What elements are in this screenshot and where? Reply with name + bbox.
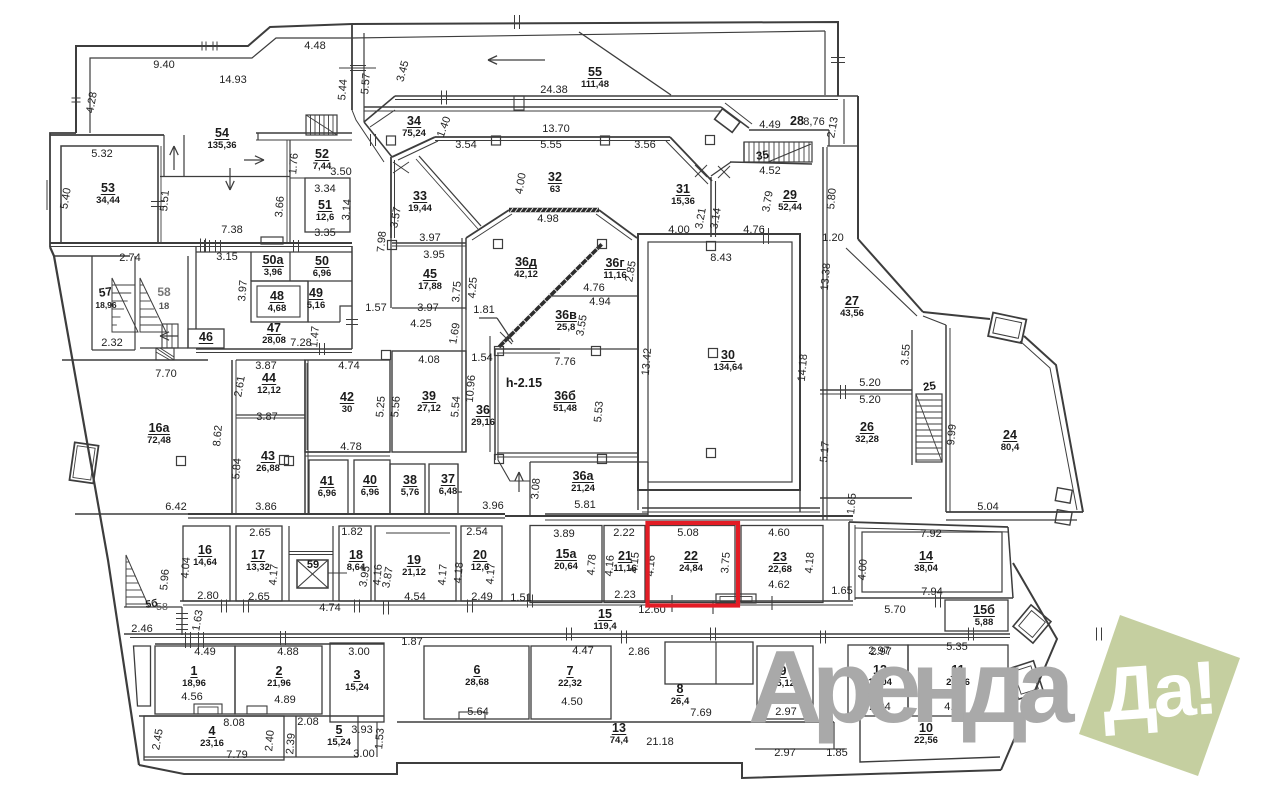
svg-text:51: 51 bbox=[318, 198, 332, 212]
svg-text:7.79: 7.79 bbox=[226, 749, 247, 761]
svg-text:41: 41 bbox=[320, 474, 334, 488]
svg-text:20,64: 20,64 bbox=[554, 561, 578, 572]
svg-text:4.76: 4.76 bbox=[743, 224, 764, 236]
svg-text:5.53: 5.53 bbox=[592, 401, 606, 423]
svg-text:28: 28 bbox=[790, 114, 804, 128]
svg-text:12,6: 12,6 bbox=[316, 212, 335, 223]
svg-text:3.50: 3.50 bbox=[330, 166, 351, 178]
svg-text:7.98: 7.98 bbox=[375, 231, 389, 253]
svg-text:13.42: 13.42 bbox=[640, 348, 654, 376]
svg-text:6,48: 6,48 bbox=[439, 486, 458, 497]
svg-text:29,16: 29,16 bbox=[471, 417, 495, 428]
svg-text:1.47: 1.47 bbox=[308, 326, 322, 348]
svg-text:36г: 36г bbox=[605, 256, 624, 270]
svg-text:4.62: 4.62 bbox=[768, 579, 789, 591]
svg-text:3.14: 3.14 bbox=[340, 199, 354, 221]
svg-text:4.89: 4.89 bbox=[274, 694, 295, 706]
svg-text:4.78: 4.78 bbox=[585, 554, 599, 576]
svg-text:36а: 36а bbox=[573, 469, 595, 483]
svg-text:30: 30 bbox=[342, 404, 353, 415]
svg-text:4.60: 4.60 bbox=[768, 527, 789, 539]
svg-text:135,36: 135,36 bbox=[207, 140, 236, 151]
svg-text:3.87: 3.87 bbox=[256, 411, 277, 423]
svg-text:2.65: 2.65 bbox=[248, 591, 269, 603]
svg-text:8.08: 8.08 bbox=[223, 717, 244, 729]
svg-text:3: 3 bbox=[354, 668, 361, 682]
svg-text:52,44: 52,44 bbox=[778, 202, 802, 213]
svg-text:4.94: 4.94 bbox=[589, 296, 610, 308]
svg-text:36д: 36д bbox=[515, 255, 537, 269]
svg-text:4.50: 4.50 bbox=[561, 696, 582, 708]
svg-text:43,56: 43,56 bbox=[840, 308, 864, 319]
svg-text:32,28: 32,28 bbox=[855, 434, 879, 445]
svg-text:34: 34 bbox=[407, 114, 421, 128]
svg-text:28,68: 28,68 bbox=[465, 677, 489, 688]
svg-text:5.17: 5.17 bbox=[818, 441, 832, 463]
svg-text:42: 42 bbox=[340, 390, 354, 404]
svg-text:8.43: 8.43 bbox=[710, 252, 731, 264]
svg-text:2.80: 2.80 bbox=[197, 590, 218, 602]
svg-text:17,88: 17,88 bbox=[418, 281, 442, 292]
svg-text:22: 22 bbox=[684, 549, 698, 563]
svg-text:31: 31 bbox=[676, 182, 690, 196]
svg-text:29: 29 bbox=[783, 188, 797, 202]
svg-text:4.98: 4.98 bbox=[537, 213, 558, 225]
svg-text:1.51: 1.51 bbox=[510, 592, 531, 604]
svg-text:27,12: 27,12 bbox=[417, 403, 441, 414]
svg-text:50а: 50а bbox=[263, 253, 285, 267]
svg-text:5.96: 5.96 bbox=[158, 569, 172, 591]
svg-text:6,96: 6,96 bbox=[313, 268, 332, 279]
svg-text:54: 54 bbox=[215, 126, 229, 140]
svg-text:1.87: 1.87 bbox=[401, 636, 422, 648]
svg-text:30: 30 bbox=[721, 348, 735, 362]
svg-text:4.08: 4.08 bbox=[418, 354, 439, 366]
svg-text:3.86: 3.86 bbox=[255, 501, 276, 513]
svg-text:4.56: 4.56 bbox=[181, 691, 202, 703]
svg-text:12,12: 12,12 bbox=[257, 385, 281, 396]
svg-text:4.49: 4.49 bbox=[759, 119, 780, 131]
svg-text:5.84: 5.84 bbox=[230, 458, 244, 480]
svg-text:57: 57 bbox=[98, 284, 113, 300]
svg-text:74,4: 74,4 bbox=[610, 735, 629, 746]
svg-text:15,24: 15,24 bbox=[327, 737, 351, 748]
svg-text:14.18: 14.18 bbox=[796, 354, 810, 382]
svg-text:2.86: 2.86 bbox=[628, 646, 649, 658]
svg-text:3,96: 3,96 bbox=[264, 267, 283, 278]
svg-text:80,4: 80,4 bbox=[1001, 442, 1020, 453]
svg-text:4.18: 4.18 bbox=[452, 562, 466, 584]
svg-text:3.97: 3.97 bbox=[417, 302, 438, 314]
svg-text:5.04: 5.04 bbox=[977, 501, 998, 513]
svg-text:36б: 36б bbox=[554, 389, 576, 403]
svg-text:3.34: 3.34 bbox=[314, 183, 335, 195]
svg-text:22,68: 22,68 bbox=[768, 564, 792, 575]
svg-text:52: 52 bbox=[315, 147, 329, 161]
svg-text:4.74: 4.74 bbox=[338, 360, 359, 372]
svg-text:38,04: 38,04 bbox=[914, 563, 938, 574]
svg-text:1.81: 1.81 bbox=[473, 304, 494, 316]
svg-text:2.32: 2.32 bbox=[101, 337, 122, 349]
svg-text:4.00: 4.00 bbox=[856, 559, 870, 581]
svg-text:3.89: 3.89 bbox=[553, 528, 574, 540]
svg-text:55: 55 bbox=[588, 65, 602, 79]
svg-text:12,6: 12,6 bbox=[471, 562, 490, 573]
svg-text:3.75: 3.75 bbox=[450, 281, 464, 303]
svg-text:19: 19 bbox=[407, 553, 421, 567]
svg-text:3.97: 3.97 bbox=[419, 232, 440, 244]
svg-text:1.65: 1.65 bbox=[845, 493, 859, 515]
svg-text:13: 13 bbox=[612, 721, 626, 735]
svg-text:53: 53 bbox=[101, 181, 115, 195]
svg-text:Аренда: Аренда bbox=[748, 629, 1075, 744]
svg-text:4.04: 4.04 bbox=[179, 557, 193, 579]
svg-text:4.52: 4.52 bbox=[759, 165, 780, 177]
svg-text:21.18: 21.18 bbox=[646, 736, 674, 748]
svg-text:6,96: 6,96 bbox=[318, 488, 337, 499]
svg-text:24.38: 24.38 bbox=[540, 84, 568, 96]
svg-text:7: 7 bbox=[567, 664, 574, 678]
svg-text:24,84: 24,84 bbox=[679, 563, 703, 574]
svg-text:2.54: 2.54 bbox=[466, 526, 487, 538]
svg-text:1.65: 1.65 bbox=[831, 585, 852, 597]
svg-text:5.20: 5.20 bbox=[859, 377, 880, 389]
svg-text:3.08: 3.08 bbox=[529, 478, 543, 500]
svg-text:36в: 36в bbox=[555, 308, 577, 322]
svg-text:18,96: 18,96 bbox=[182, 678, 206, 689]
svg-text:38: 38 bbox=[403, 473, 417, 487]
svg-text:2.49: 2.49 bbox=[471, 591, 492, 603]
svg-text:11,16: 11,16 bbox=[603, 270, 626, 281]
svg-text:27: 27 bbox=[845, 294, 859, 308]
svg-text:1: 1 bbox=[191, 664, 198, 678]
svg-text:4.78: 4.78 bbox=[340, 441, 361, 453]
svg-text:5.54: 5.54 bbox=[449, 396, 463, 418]
svg-text:7.70: 7.70 bbox=[155, 368, 176, 380]
svg-text:22,32: 22,32 bbox=[558, 678, 582, 689]
svg-text:5,88: 5,88 bbox=[975, 617, 994, 628]
svg-text:9.40: 9.40 bbox=[153, 59, 174, 71]
svg-text:3.66: 3.66 bbox=[273, 196, 287, 218]
svg-text:18: 18 bbox=[159, 301, 170, 312]
svg-text:21,12: 21,12 bbox=[402, 567, 426, 578]
svg-text:4,68: 4,68 bbox=[268, 303, 287, 314]
svg-text:26,4: 26,4 bbox=[671, 696, 690, 707]
svg-text:2.97: 2.97 bbox=[774, 747, 795, 759]
svg-text:15,24: 15,24 bbox=[345, 682, 369, 693]
svg-text:1.54: 1.54 bbox=[471, 352, 492, 364]
svg-text:5.08: 5.08 bbox=[677, 527, 698, 539]
svg-text:48: 48 bbox=[270, 289, 284, 303]
svg-text:17: 17 bbox=[251, 548, 265, 562]
svg-text:4.47: 4.47 bbox=[572, 645, 593, 657]
svg-text:9.99: 9.99 bbox=[945, 424, 959, 446]
svg-text:6.42: 6.42 bbox=[165, 501, 186, 513]
svg-text:4.54: 4.54 bbox=[404, 591, 425, 603]
svg-text:4.17: 4.17 bbox=[436, 564, 450, 586]
svg-text:20: 20 bbox=[473, 548, 487, 562]
svg-text:13,32: 13,32 bbox=[246, 562, 270, 573]
svg-text:h-2.15: h-2.15 bbox=[506, 376, 542, 390]
svg-text:4.88: 4.88 bbox=[277, 646, 298, 658]
svg-text:3.56: 3.56 bbox=[634, 139, 655, 151]
svg-text:4.18: 4.18 bbox=[803, 552, 817, 574]
svg-text:15а: 15а bbox=[556, 547, 578, 561]
svg-text:23,16: 23,16 bbox=[200, 738, 224, 749]
svg-text:3.93: 3.93 bbox=[351, 724, 372, 736]
svg-text:8.62: 8.62 bbox=[211, 425, 225, 447]
svg-text:2.74: 2.74 bbox=[119, 252, 140, 264]
svg-text:15: 15 bbox=[598, 607, 612, 621]
svg-text:4.48: 4.48 bbox=[304, 40, 325, 52]
svg-text:3.00: 3.00 bbox=[348, 646, 369, 658]
svg-text:45: 45 bbox=[423, 267, 437, 281]
svg-text:2.23: 2.23 bbox=[614, 589, 635, 601]
svg-text:24: 24 bbox=[1003, 428, 1017, 442]
svg-text:7,44: 7,44 bbox=[313, 161, 332, 172]
svg-text:5.80: 5.80 bbox=[825, 188, 839, 210]
svg-text:59: 59 bbox=[307, 559, 319, 571]
svg-text:5.44: 5.44 bbox=[336, 79, 350, 101]
svg-text:58: 58 bbox=[157, 285, 171, 299]
svg-text:3.55: 3.55 bbox=[899, 344, 913, 366]
svg-text:14: 14 bbox=[919, 549, 933, 563]
svg-text:134,64: 134,64 bbox=[713, 362, 743, 373]
svg-text:6,96: 6,96 bbox=[361, 487, 380, 498]
svg-text:7.69: 7.69 bbox=[690, 707, 711, 719]
svg-text:1.20: 1.20 bbox=[822, 232, 843, 244]
svg-text:40: 40 bbox=[363, 473, 377, 487]
svg-text:119,4: 119,4 bbox=[593, 621, 617, 632]
svg-text:36: 36 bbox=[476, 403, 490, 417]
svg-text:5,76: 5,76 bbox=[401, 487, 420, 498]
svg-text:47: 47 bbox=[267, 321, 281, 335]
svg-text:4.25: 4.25 bbox=[466, 277, 480, 299]
svg-text:18: 18 bbox=[349, 548, 363, 562]
svg-text:1.85: 1.85 bbox=[826, 747, 847, 759]
svg-text:4.49: 4.49 bbox=[194, 646, 215, 658]
svg-text:5.20: 5.20 bbox=[859, 394, 880, 406]
svg-text:5: 5 bbox=[336, 723, 343, 737]
svg-text:2.65: 2.65 bbox=[249, 527, 270, 539]
svg-text:5.57: 5.57 bbox=[359, 73, 373, 95]
svg-text:2.39: 2.39 bbox=[284, 733, 298, 755]
svg-text:11,16: 11,16 bbox=[613, 563, 636, 574]
svg-text:2.22: 2.22 bbox=[613, 527, 634, 539]
svg-text:3.75: 3.75 bbox=[719, 552, 733, 574]
svg-text:72,48: 72,48 bbox=[147, 435, 171, 446]
svg-text:8,64: 8,64 bbox=[347, 562, 366, 573]
svg-text:3.96: 3.96 bbox=[482, 500, 503, 512]
svg-text:44: 44 bbox=[262, 371, 276, 385]
svg-text:4.74: 4.74 bbox=[319, 602, 340, 614]
svg-text:34,44: 34,44 bbox=[96, 195, 120, 206]
svg-text:7.92: 7.92 bbox=[920, 528, 941, 540]
svg-text:4.00: 4.00 bbox=[668, 224, 689, 236]
svg-text:2.40: 2.40 bbox=[263, 730, 277, 752]
svg-text:5.25: 5.25 bbox=[374, 396, 388, 418]
svg-text:19,44: 19,44 bbox=[408, 203, 432, 214]
svg-text:3.15: 3.15 bbox=[216, 251, 237, 263]
svg-text:7.38: 7.38 bbox=[221, 224, 242, 236]
svg-text:39: 39 bbox=[422, 389, 436, 403]
svg-text:14.93: 14.93 bbox=[219, 74, 247, 86]
svg-text:35: 35 bbox=[755, 149, 770, 163]
svg-text:7.76: 7.76 bbox=[554, 356, 575, 368]
svg-text:18,96: 18,96 bbox=[95, 300, 117, 310]
svg-text:23: 23 bbox=[773, 550, 787, 564]
svg-text:21,96: 21,96 bbox=[267, 678, 291, 689]
svg-text:1.76: 1.76 bbox=[287, 153, 301, 175]
svg-text:111,48: 111,48 bbox=[581, 79, 609, 90]
svg-text:5,16: 5,16 bbox=[307, 300, 326, 311]
svg-text:5.32: 5.32 bbox=[91, 148, 112, 160]
svg-text:3.54: 3.54 bbox=[455, 139, 476, 151]
svg-text:37: 37 bbox=[441, 472, 455, 486]
svg-text:3.35: 3.35 bbox=[314, 227, 335, 239]
svg-text:13.70: 13.70 bbox=[542, 123, 570, 135]
svg-text:5.51: 5.51 bbox=[158, 190, 172, 212]
svg-text:10.96: 10.96 bbox=[464, 375, 478, 403]
svg-text:8,76: 8,76 bbox=[803, 116, 824, 128]
svg-text:33: 33 bbox=[413, 189, 427, 203]
svg-text:21,24: 21,24 bbox=[571, 483, 595, 494]
svg-text:46: 46 bbox=[199, 330, 213, 344]
svg-text:16а: 16а bbox=[149, 421, 171, 435]
svg-text:5.70: 5.70 bbox=[884, 604, 905, 616]
svg-text:49: 49 bbox=[309, 286, 323, 300]
svg-text:21: 21 bbox=[618, 549, 632, 563]
svg-text:28,08: 28,08 bbox=[262, 335, 286, 346]
svg-text:4.25: 4.25 bbox=[410, 318, 431, 330]
svg-text:1.53: 1.53 bbox=[373, 728, 387, 750]
svg-text:1.82: 1.82 bbox=[341, 526, 362, 538]
svg-text:14,64: 14,64 bbox=[193, 557, 217, 568]
svg-text:43: 43 bbox=[261, 449, 275, 463]
svg-text:42,12: 42,12 bbox=[514, 269, 538, 280]
svg-text:15б: 15б bbox=[973, 603, 995, 617]
svg-text:5.55: 5.55 bbox=[540, 139, 561, 151]
svg-text:3.95: 3.95 bbox=[423, 249, 444, 261]
svg-text:26: 26 bbox=[860, 420, 874, 434]
svg-text:58: 58 bbox=[156, 601, 168, 613]
svg-text:7.94: 7.94 bbox=[921, 586, 942, 598]
svg-text:51,48: 51,48 bbox=[553, 403, 577, 414]
svg-text:13.38: 13.38 bbox=[819, 263, 833, 291]
svg-text:63: 63 bbox=[550, 184, 561, 195]
svg-text:3.97: 3.97 bbox=[236, 280, 250, 302]
svg-text:1.57: 1.57 bbox=[365, 302, 386, 314]
svg-text:25,8: 25,8 bbox=[557, 322, 576, 333]
svg-text:50: 50 bbox=[315, 254, 329, 268]
svg-text:2: 2 bbox=[276, 664, 283, 678]
svg-text:25: 25 bbox=[922, 380, 937, 394]
svg-text:8: 8 bbox=[677, 682, 684, 696]
svg-text:2.08: 2.08 bbox=[297, 716, 318, 728]
svg-text:75,24: 75,24 bbox=[402, 128, 426, 139]
svg-text:16: 16 bbox=[198, 543, 212, 557]
svg-text:4: 4 bbox=[209, 724, 216, 738]
svg-text:4.76: 4.76 bbox=[583, 282, 604, 294]
svg-text:5.81: 5.81 bbox=[574, 499, 595, 511]
svg-text:3.00: 3.00 bbox=[353, 748, 374, 760]
svg-text:6: 6 bbox=[474, 663, 481, 677]
svg-text:5.64: 5.64 bbox=[467, 706, 488, 718]
svg-text:Да!: Да! bbox=[1099, 645, 1217, 738]
svg-text:32: 32 bbox=[548, 170, 562, 184]
svg-text:5.56: 5.56 bbox=[389, 396, 403, 418]
svg-text:26,88: 26,88 bbox=[256, 463, 280, 474]
svg-text:15,36: 15,36 bbox=[671, 196, 695, 207]
svg-text:2.46: 2.46 bbox=[131, 623, 152, 635]
